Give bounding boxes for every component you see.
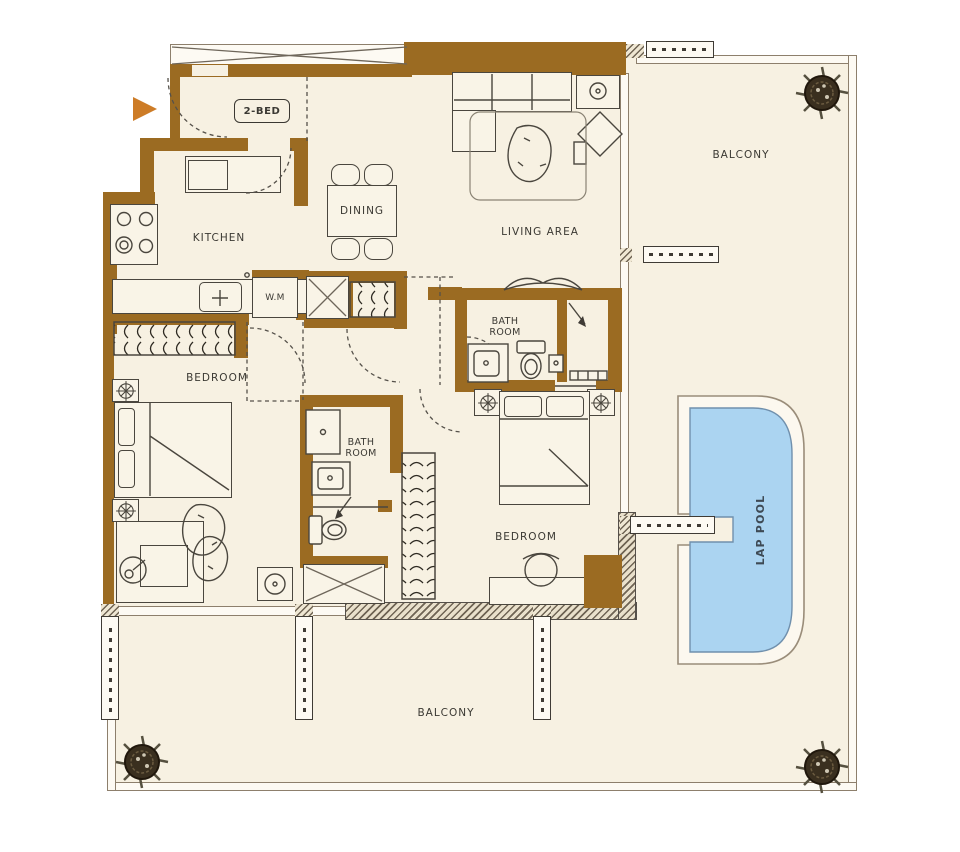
unit-type-badge: 2-BED — [234, 99, 290, 123]
bed-right-linen — [500, 419, 588, 486]
curtain-wing — [504, 278, 582, 290]
wardrobe-right-bedroom — [402, 453, 435, 599]
balcony-bottom-label: BALCONY — [386, 704, 506, 722]
side-table-lamp — [120, 557, 146, 583]
unit-type-label: 2-BED — [244, 106, 281, 117]
floor-plan: W.M — [0, 0, 960, 852]
sofa-cushions — [454, 74, 570, 110]
plant-icon — [116, 736, 168, 788]
sliding-door — [646, 41, 714, 58]
plan-linework — [0, 0, 960, 852]
kitchen-label: KITCHEN — [159, 229, 279, 247]
window-glazing — [172, 47, 407, 64]
hall-closet — [350, 282, 395, 317]
wardrobe-left-bedroom — [114, 322, 235, 355]
coffee-table — [508, 125, 551, 181]
desk-chair — [523, 554, 559, 587]
sliding-door — [295, 616, 313, 720]
shaft-x — [309, 279, 346, 316]
bathroom-mid-label: BATH ROOM — [335, 431, 387, 465]
storage-x — [306, 567, 382, 601]
bedroom-right-label: BEDROOM — [466, 528, 586, 546]
dining-label: DINING — [327, 202, 397, 220]
plant-icon — [796, 67, 848, 119]
tv — [590, 83, 606, 99]
bathroom-top-label: BATH ROOM — [479, 310, 531, 344]
plant-icon — [796, 741, 848, 793]
sliding-door — [643, 246, 719, 263]
living-area-label: LIVING AREA — [480, 223, 600, 241]
sink-cross — [212, 290, 228, 306]
lounge-chair — [574, 112, 622, 164]
entry-arrow-icon — [133, 97, 157, 121]
stove-burners — [116, 213, 153, 254]
bed-left-linen — [150, 403, 229, 496]
counter-knob — [245, 273, 249, 277]
sliding-door — [101, 616, 119, 720]
bedroom-rug — [183, 505, 228, 581]
balcony-right-label: BALCONY — [681, 146, 801, 164]
sliding-door — [630, 516, 715, 534]
bedroom-left-label: BEDROOM — [157, 369, 277, 387]
side-chair-detail — [265, 574, 285, 594]
lap-pool-label: LAP POOL — [717, 485, 803, 575]
sliding-door — [533, 616, 551, 720]
